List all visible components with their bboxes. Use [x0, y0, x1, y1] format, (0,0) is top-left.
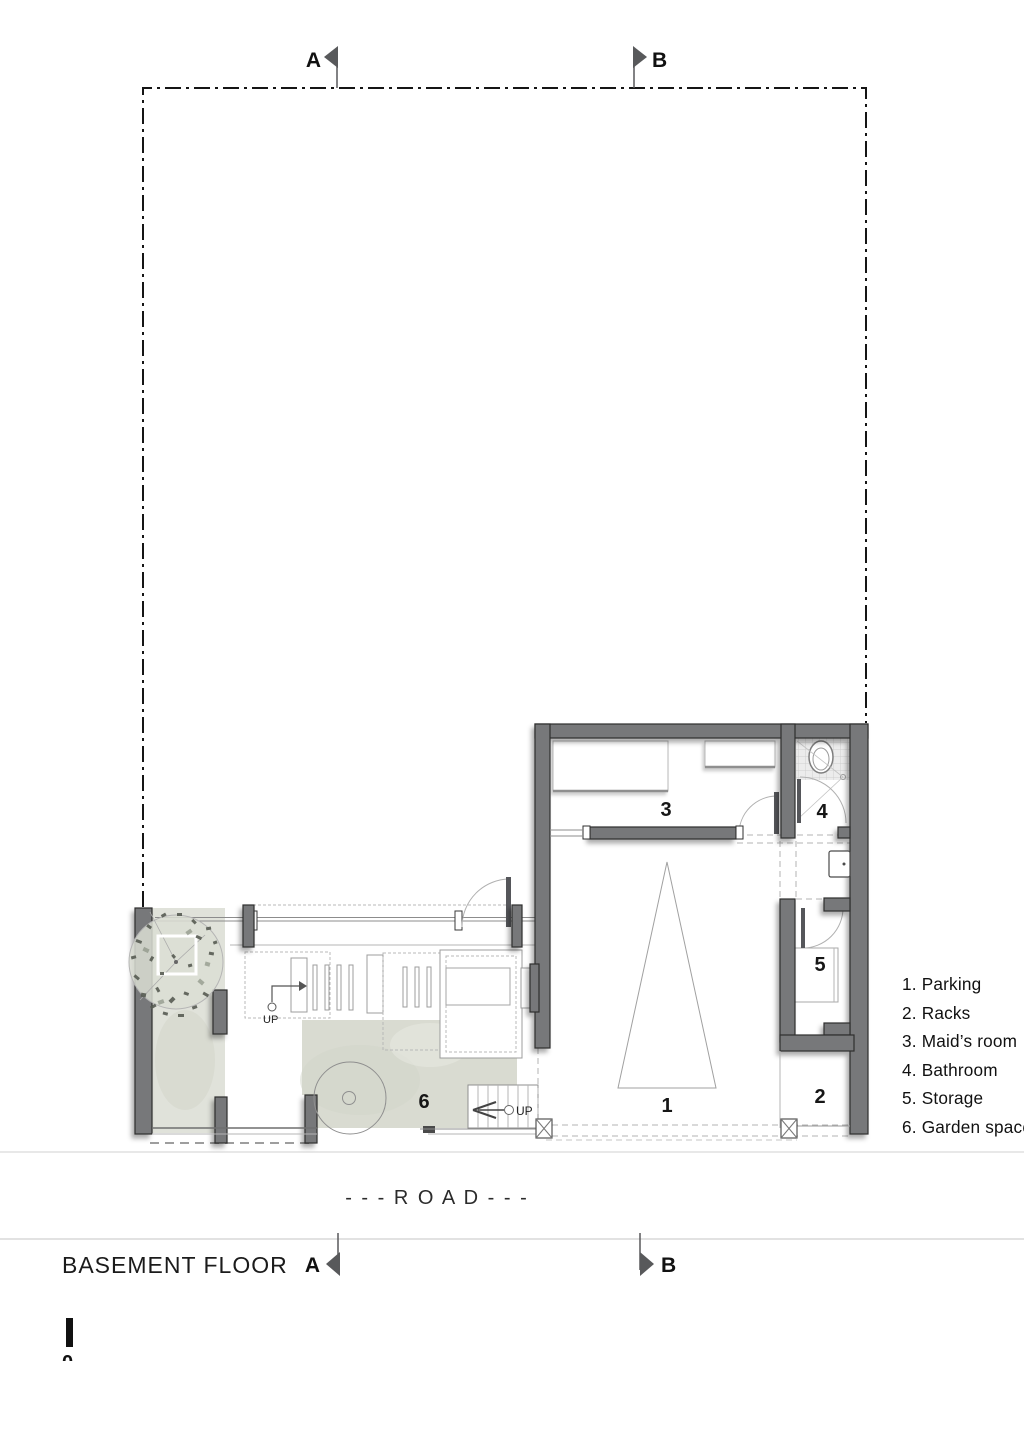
- section-marker-b-top: B: [633, 46, 667, 88]
- water-heater: [829, 851, 850, 877]
- maids-room-furniture: [553, 741, 775, 791]
- room-label-storage: 5: [814, 954, 825, 976]
- garden-door-leaf: [506, 877, 511, 927]
- scale-bar: [66, 1318, 73, 1347]
- wall-right: [850, 724, 868, 1134]
- wall-stub: [824, 898, 850, 911]
- road-label: - - - R O A D - - -: [345, 1187, 529, 1209]
- up-start-circle: [268, 1003, 276, 1011]
- storage-door-swing: [803, 908, 843, 948]
- section-a-flag-icon: [324, 46, 338, 68]
- wall-room3-partial: [590, 827, 736, 839]
- section-b-label: B: [661, 1254, 676, 1277]
- wall-end-cap: [583, 826, 590, 839]
- shelf: [705, 741, 775, 767]
- scale-mark: 0: [54, 1318, 84, 1377]
- rack-slat: [325, 965, 329, 1010]
- rack-slat: [415, 967, 419, 1007]
- page-title: BASEMENT FLOOR: [62, 1252, 288, 1278]
- legend-item-parking: 1. Parking: [902, 974, 981, 994]
- section-marker-a-bottom: A: [305, 1233, 340, 1277]
- section-marker-b-bottom: B: [640, 1233, 676, 1277]
- bed: [553, 741, 668, 791]
- wall-room5-bottom: [780, 1035, 854, 1051]
- rack-slat: [403, 967, 407, 1007]
- section-a-label: A: [305, 1254, 320, 1277]
- column-marker: [781, 1119, 797, 1138]
- wall-top: [535, 724, 868, 738]
- section-a-label: A: [306, 49, 321, 72]
- rack-unit: [367, 955, 383, 1013]
- storage-door-leaf: [801, 908, 805, 948]
- room-label-bathroom: 4: [816, 801, 828, 823]
- window-post: [243, 905, 254, 947]
- garden-post: [213, 990, 227, 1034]
- legend: 1. Parking 2. Racks 3. Maid’s room 4. Ba…: [902, 974, 1024, 1137]
- legend-item-maids-room: 3. Maid’s room: [902, 1031, 1017, 1051]
- legend-item-storage: 5. Storage: [902, 1088, 983, 1108]
- room-label-racks: 2: [814, 1086, 825, 1108]
- basement-floor-plan-drawing: A B: [0, 0, 1024, 1448]
- rack-slat: [349, 965, 353, 1010]
- bathroom-door-leaf: [797, 779, 801, 823]
- wall-notch: [530, 964, 539, 1012]
- section-b-flag-icon: [633, 46, 647, 68]
- maids-room-door-leaf: [774, 792, 779, 834]
- road-band: - - - R O A D - - -: [0, 1152, 1024, 1239]
- section-a-flag-icon: [326, 1252, 340, 1276]
- wash-mottle: [155, 1010, 215, 1110]
- rack-slat: [313, 965, 317, 1010]
- legend-item-bathroom: 4. Bathroom: [902, 1060, 998, 1080]
- wall-room5-left: [780, 899, 795, 1042]
- stairs: UP: [468, 1085, 538, 1128]
- room-label-maids-room: 3: [660, 799, 671, 821]
- wall-end-cap: [736, 826, 743, 839]
- window-post: [512, 905, 522, 947]
- up-label: UP: [263, 1014, 278, 1026]
- water-heater-dot: [843, 863, 846, 866]
- parking-direction-triangle: [618, 862, 716, 1088]
- room-label-parking: 1: [661, 1095, 672, 1117]
- section-marker-a-top: A: [306, 46, 338, 88]
- gate-post: [215, 1097, 227, 1143]
- scale-crop-mask: [54, 1361, 84, 1377]
- property-boundary-line: [143, 88, 866, 907]
- section-b-flag-icon: [640, 1252, 654, 1276]
- room-label-garden: 6: [418, 1091, 429, 1113]
- column-marker: [536, 1119, 552, 1138]
- section-b-label: B: [652, 49, 667, 72]
- rack-slat: [427, 967, 431, 1007]
- toilet: [809, 741, 833, 773]
- tree-trunk: [174, 960, 178, 964]
- legend-item-garden: 6. Garden space: [902, 1117, 1024, 1137]
- legend-item-racks: 2. Racks: [902, 1003, 970, 1023]
- wall-stub: [824, 1023, 850, 1035]
- maids-room-door-swing: [739, 796, 777, 834]
- floor-plan-sheet: A B: [0, 0, 1024, 1448]
- wall-stub: [838, 827, 850, 838]
- garden-door-swing: [462, 879, 510, 927]
- rack-slat: [337, 965, 341, 1010]
- up-label: UP: [516, 1104, 533, 1118]
- window-mullion: [455, 911, 462, 930]
- wall-room3-room4-divider: [781, 724, 795, 838]
- up-start-circle: [505, 1106, 514, 1115]
- gate-post: [305, 1095, 317, 1143]
